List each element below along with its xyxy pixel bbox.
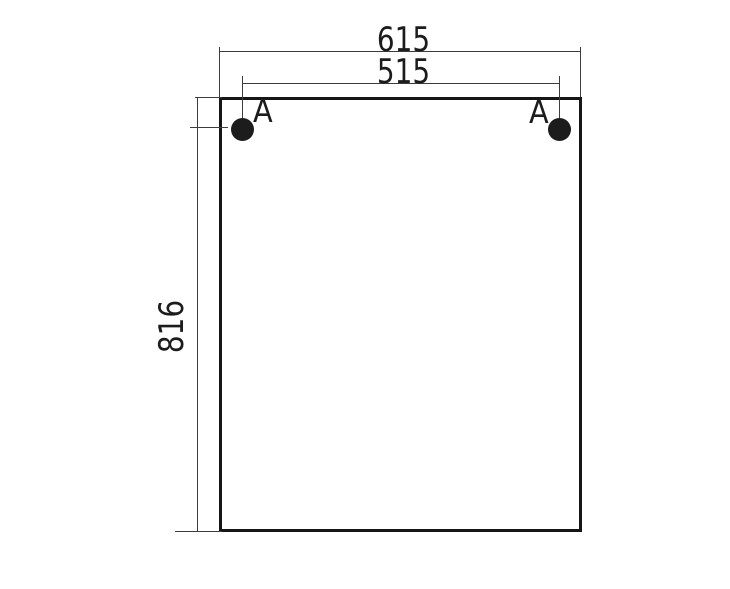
drawing-canvas: 615 515 816 A A bbox=[0, 0, 730, 589]
extension-line-overall-width-right bbox=[580, 47, 581, 97]
tick-height-bottom bbox=[175, 531, 222, 532]
dim-value-overall-height-text: 816 bbox=[155, 300, 189, 353]
dim-value-overall-height: 816 bbox=[155, 257, 189, 397]
hole-label-right-text: A bbox=[529, 96, 549, 128]
hole-label-left: A bbox=[253, 95, 275, 127]
extension-line-overall-width-left bbox=[219, 47, 220, 97]
hole-label-left-text: A bbox=[253, 95, 273, 127]
hole-marker-left bbox=[231, 118, 254, 141]
dim-value-hole-spacing-text: 515 bbox=[376, 55, 429, 89]
tick-height-top bbox=[195, 97, 222, 98]
hole-marker-right bbox=[548, 118, 571, 141]
tick-hole-level bbox=[190, 127, 228, 128]
hole-label-right: A bbox=[529, 96, 551, 128]
panel-outline bbox=[219, 97, 582, 532]
dim-value-hole-spacing: 515 bbox=[333, 55, 473, 89]
dim-line-overall-height bbox=[197, 97, 198, 532]
